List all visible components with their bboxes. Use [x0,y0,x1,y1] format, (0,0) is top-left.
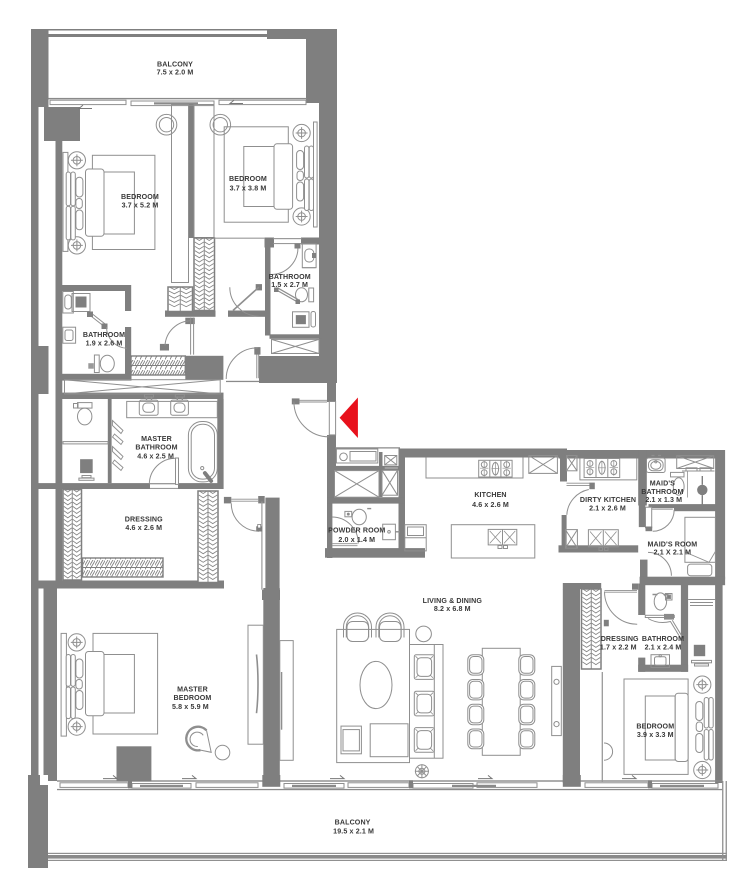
svg-text:BALCONY: BALCONY [335,819,371,827]
svg-text:4.6 x 2.5 M: 4.6 x 2.5 M [137,453,174,461]
svg-text:2.0 x 1.4 M: 2.0 x 1.4 M [338,536,375,544]
svg-text:MAID'S: MAID'S [650,480,675,488]
svg-text:1.7 x 2.2 M: 1.7 x 2.2 M [600,644,637,652]
svg-text:BEDROOM: BEDROOM [174,694,212,702]
svg-text:3.7 x 5.2 M: 3.7 x 5.2 M [122,202,159,210]
svg-text:8.2 x 6.8 M: 8.2 x 6.8 M [434,605,471,613]
svg-text:MAID'S ROOM: MAID'S ROOM [647,541,697,549]
svg-text:2.1 X 2.1 M: 2.1 X 2.1 M [654,549,692,557]
svg-text:MASTER: MASTER [177,686,208,694]
svg-text:KITCHEN: KITCHEN [474,491,506,499]
svg-text:DRESSING: DRESSING [125,516,163,524]
svg-text:2.1 x 1.3 M: 2.1 x 1.3 M [645,496,682,504]
svg-text:4.6 x 2.6 M: 4.6 x 2.6 M [472,501,509,509]
svg-text:BATHROOM: BATHROOM [83,331,125,339]
svg-text:BEDROOM: BEDROOM [636,723,674,731]
svg-text:1.9 x 2.6 M: 1.9 x 2.6 M [86,340,123,348]
svg-text:BATHROOM: BATHROOM [269,273,311,281]
svg-text:3.9 x 3.3 M: 3.9 x 3.3 M [637,731,674,739]
svg-text:BATHROOM: BATHROOM [641,488,683,496]
svg-text:3.7 x 3.8 M: 3.7 x 3.8 M [230,185,267,193]
svg-text:19.5 x 2.1 M: 19.5 x 2.1 M [333,828,374,836]
svg-text:2.1 x 2.4 M: 2.1 x 2.4 M [645,644,682,652]
svg-text:1.5 x 2.7 M: 1.5 x 2.7 M [271,281,308,289]
svg-text:BEDROOM: BEDROOM [229,175,267,183]
svg-text:7.5 x 2.0 M: 7.5 x 2.0 M [157,69,194,77]
svg-text:DIRTY KITCHEN: DIRTY KITCHEN [580,496,636,504]
svg-text:4.6 x 2.6 M: 4.6 x 2.6 M [125,524,162,532]
svg-text:BATHROOM: BATHROOM [642,635,684,643]
svg-text:2.1 x 2.6 M: 2.1 x 2.6 M [589,505,626,513]
svg-text:DRESSING: DRESSING [601,635,639,643]
svg-text:LIVING & DINING: LIVING & DINING [423,597,483,605]
svg-text:MASTER: MASTER [141,435,172,443]
svg-text:BALCONY: BALCONY [157,61,193,69]
svg-text:BEDROOM: BEDROOM [121,193,159,201]
svg-text:BATHROOM: BATHROOM [135,444,177,452]
svg-text:5.8 x 5.9 M: 5.8 x 5.9 M [172,703,209,711]
svg-text:POWDER ROOM: POWDER ROOM [328,527,385,535]
